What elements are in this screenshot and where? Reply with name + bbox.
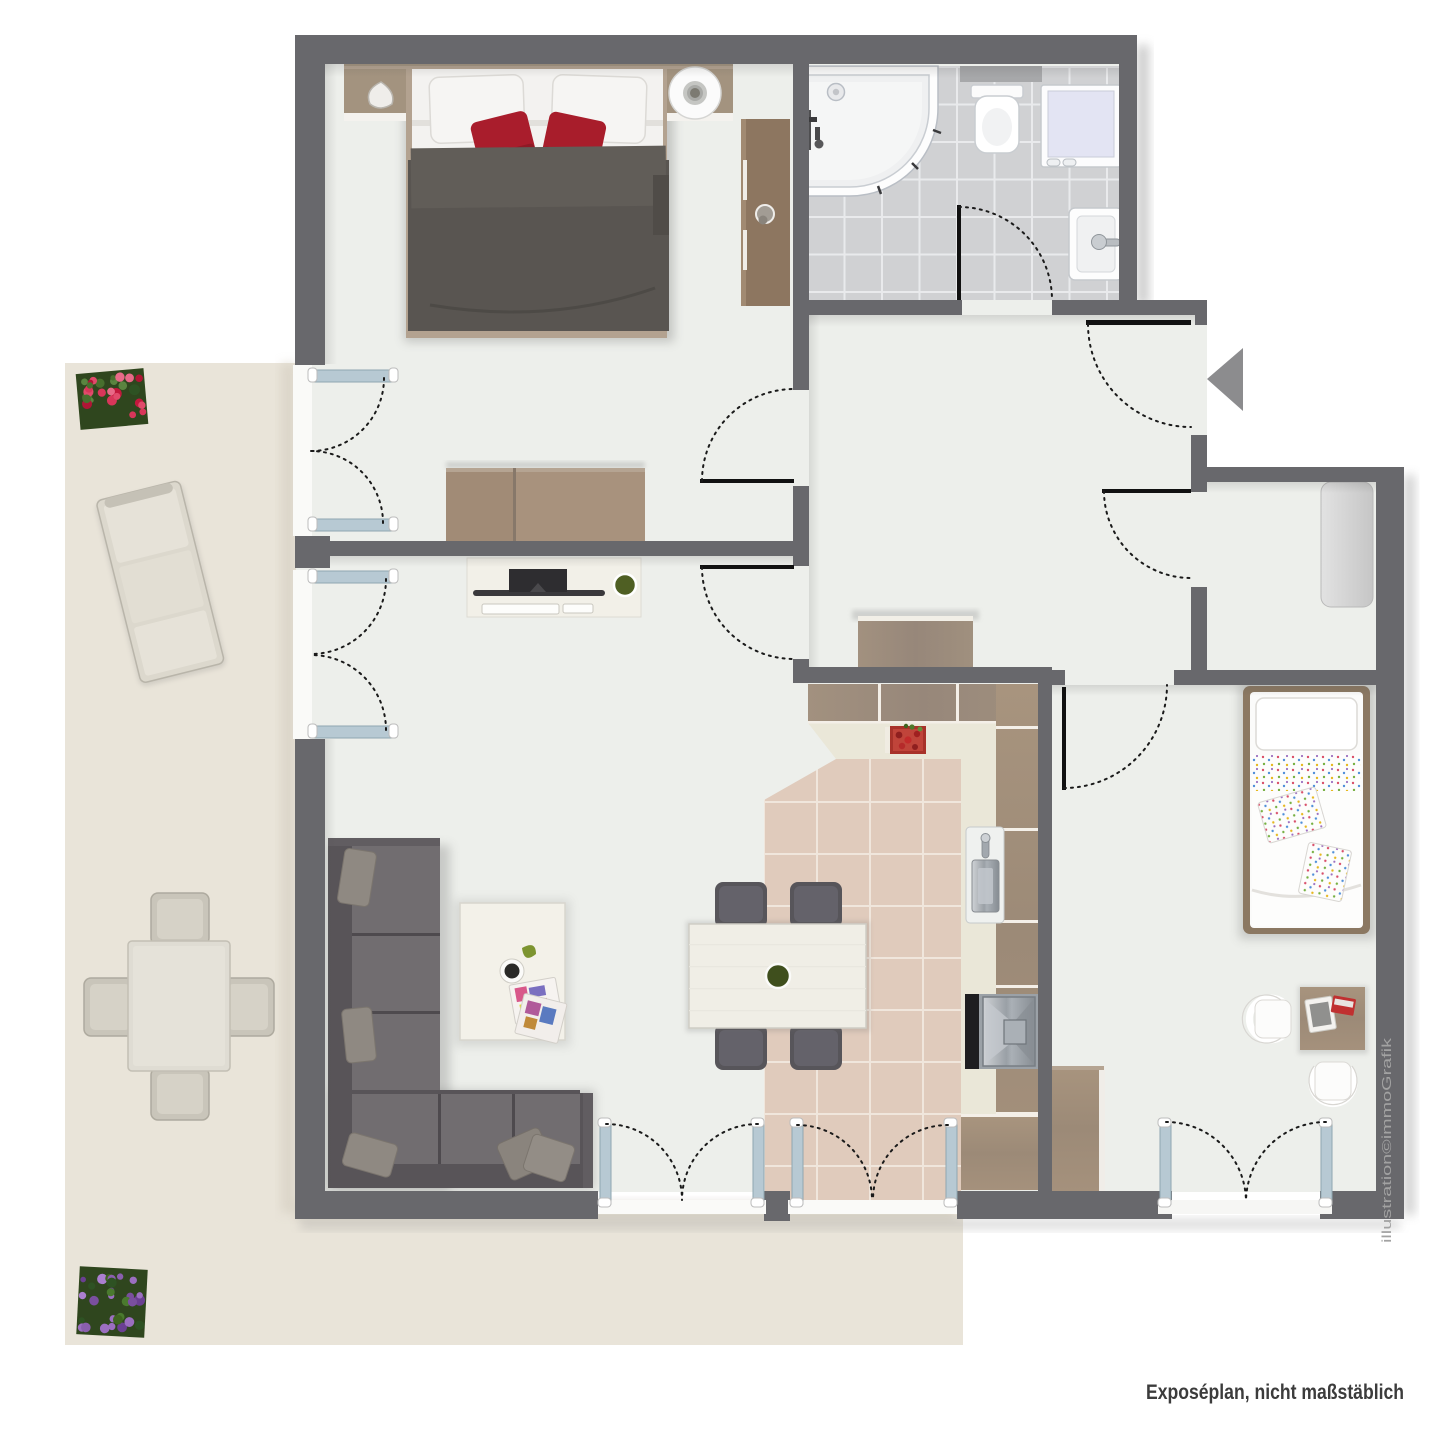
svg-text:illustration©immoGrafik: illustration©immoGrafik bbox=[1379, 1037, 1394, 1243]
svg-text:Exposéplan, nicht maßstäblich: Exposéplan, nicht maßstäblich bbox=[1146, 1381, 1404, 1404]
